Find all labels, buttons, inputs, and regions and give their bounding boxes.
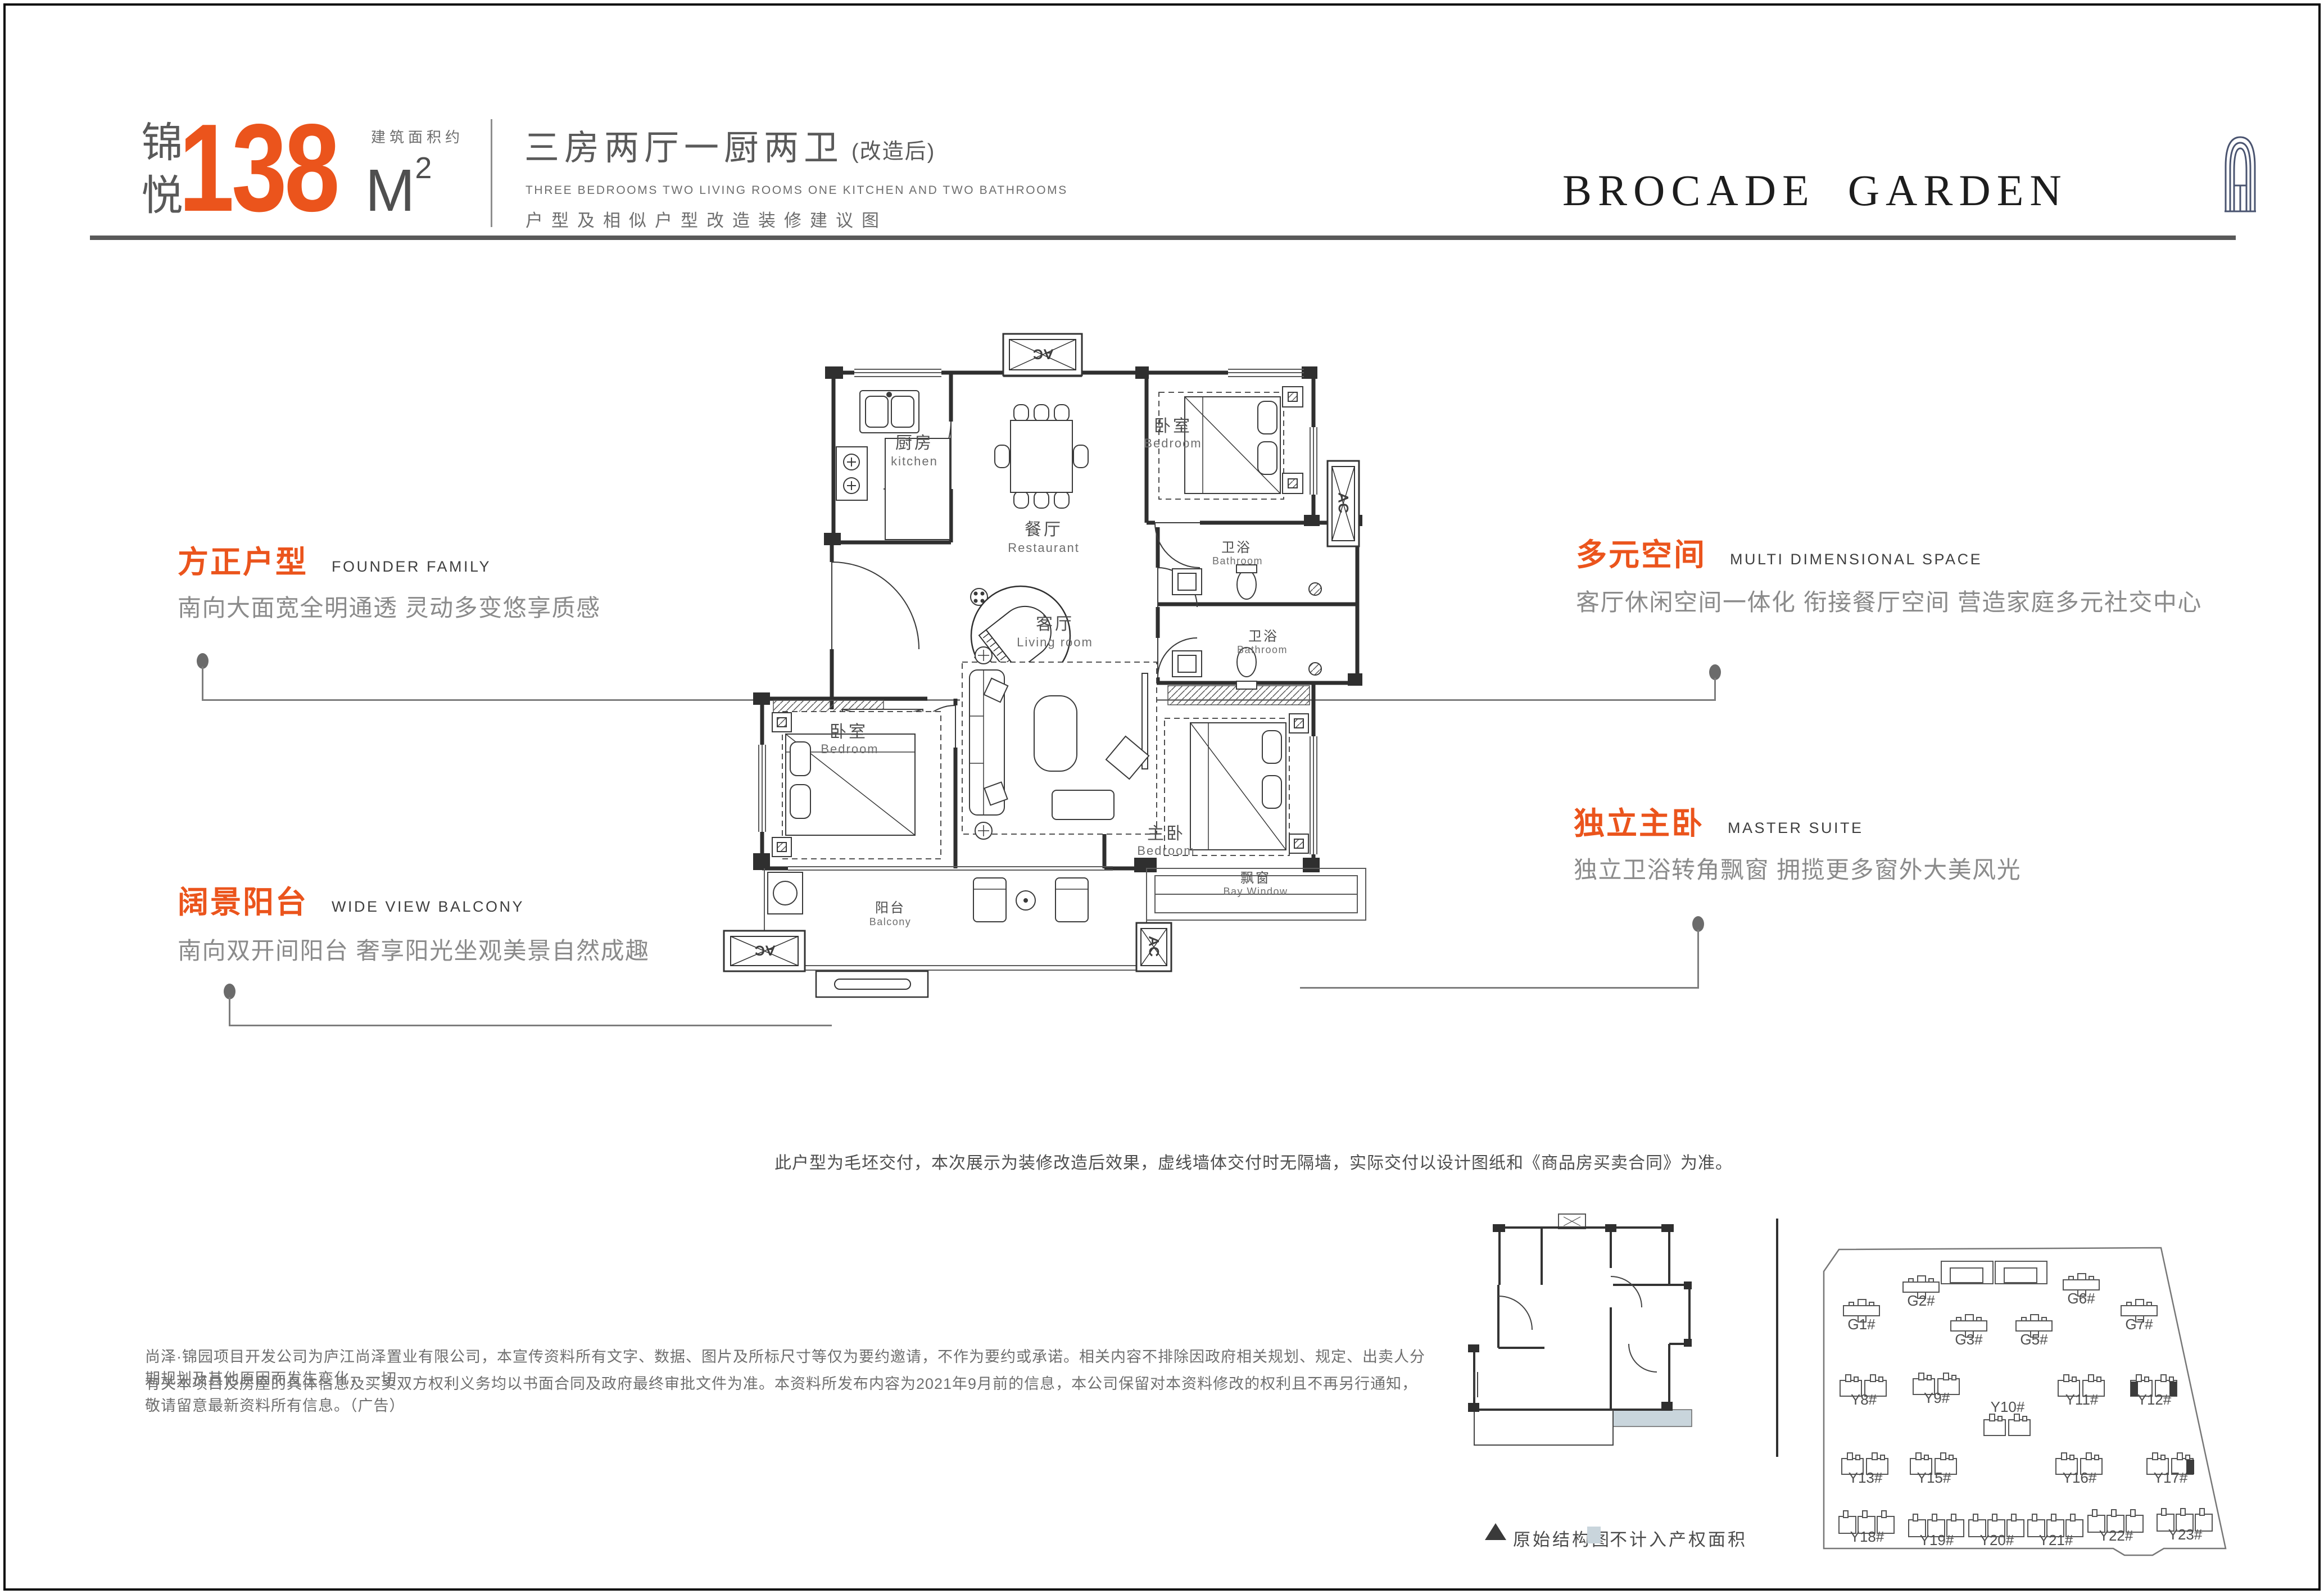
- leader-line: [1714, 678, 1716, 701]
- arch-door-icon: [2223, 134, 2257, 212]
- building-label: Y11#: [2065, 1391, 2099, 1408]
- dining-table: [995, 405, 1088, 508]
- callout-title-en: MASTER SUITE: [1728, 819, 1864, 839]
- room-bath-lower-en: Bathroom: [1237, 644, 1288, 655]
- callout-title-cn: 阔景阳台: [178, 887, 308, 918]
- non-property-area: [1613, 1410, 1692, 1427]
- room-balcony-cn: 阳台: [875, 900, 905, 916]
- room-bay-en: Bay Window: [1223, 886, 1288, 897]
- layout-subtitle: 户型及相似户型改造装修建议图: [525, 206, 887, 232]
- room-balcony-en: Balcony: [869, 916, 912, 927]
- room-bay-cn: 飘窗: [1240, 871, 1271, 886]
- vertical-separator: [1776, 1219, 1778, 1457]
- room-bedroom-top-en: Bedroom: [1144, 436, 1202, 450]
- callout-title-cn: 独立主卧: [1574, 808, 1704, 839]
- callout-body: 南向双开间阳台 奢享阳光坐观美景自然成趣: [178, 932, 650, 966]
- balcony-furniture: [768, 872, 1088, 922]
- room-dining-en: Restaurant: [1008, 541, 1080, 555]
- callout-multi-dimensional-space: 多元空间 MULTI DIMENSIONAL SPACE: [1576, 540, 1982, 570]
- building-label: Y19#: [1920, 1532, 1954, 1548]
- room-bedroom-top-cn: 卧室: [1154, 417, 1192, 436]
- room-master-cn: 主卧: [1147, 825, 1185, 843]
- building-label: Y20#: [1980, 1532, 2014, 1548]
- area-unit-sup: 2: [415, 151, 432, 185]
- building-label: G6#: [2067, 1290, 2095, 1307]
- ac-unit-right: AC: [1328, 461, 1359, 546]
- callout-master-suite: 独立主卧 MASTER SUITE: [1574, 808, 1864, 839]
- callout-title-cn: 多元空间: [1576, 540, 1706, 570]
- building-label: Y9#: [1924, 1389, 1950, 1406]
- brochure-page: 锦悦 138 建筑面积约 M2 三房两厅一厨两卫 (改造后) THREE BED…: [0, 0, 2324, 1594]
- header-divider: [491, 119, 492, 227]
- room-living-en: Living room: [1017, 635, 1093, 649]
- callout-wide-view-balcony: 阔景阳台 WIDE VIEW BALCONY: [178, 887, 524, 918]
- header-rule: [90, 236, 2236, 240]
- svg-text:AC: AC: [1335, 493, 1351, 514]
- floor-plan: AC AC AC AC: [719, 326, 1385, 1124]
- ac-unit-bottom-left: AC: [724, 931, 805, 971]
- leader-line: [229, 997, 230, 1026]
- brand-logo: BROCADE GARDEN: [1562, 165, 2068, 216]
- svg-text:AC: AC: [754, 943, 774, 958]
- callout-body: 独立卫浴转角飘窗 拥揽更多窗外大美风光: [1574, 851, 2021, 885]
- room-bedroom-left-cn: 卧室: [830, 723, 868, 741]
- callout-title-cn: 方正户型: [178, 547, 308, 578]
- building-label: Y12#: [2137, 1391, 2172, 1408]
- room-bath-upper-en: Bathroom: [1212, 555, 1263, 567]
- swatch-icon: [1587, 1527, 1601, 1543]
- logo-word-1: BROCADE: [1562, 165, 1815, 216]
- building-label: Y17#: [2154, 1469, 2188, 1486]
- building-label: Y10#: [1991, 1398, 2025, 1415]
- layout-title: 三房两厅一厨两卫: [524, 128, 844, 168]
- room-bedroom-left-en: Bedroom: [821, 742, 878, 756]
- building-label: Y23#: [2168, 1526, 2203, 1543]
- building-label: G5#: [2020, 1331, 2048, 1348]
- leader-line: [1697, 930, 1699, 989]
- leader-line: [202, 667, 203, 700]
- svg-text:AC: AC: [1146, 936, 1161, 957]
- building-label: G7#: [2125, 1316, 2153, 1333]
- ac-unit-bottom-mid: AC: [1136, 923, 1171, 971]
- layout-title-en: THREE BEDROOMS TWO LIVING ROOMS ONE KITC…: [525, 184, 1068, 197]
- room-living-cn: 客厅: [1036, 615, 1074, 633]
- logo-word-2: GARDEN: [1848, 165, 2068, 216]
- area-note: 建筑面积约: [371, 126, 464, 147]
- building-label: Y15#: [1917, 1469, 1951, 1486]
- room-master-en: Bedroom: [1137, 844, 1195, 858]
- plan-note: 此户型为毛坯交付，本次展示为装修改造后效果，虚线墙体交付时无隔墙，实际交付以设计…: [774, 1149, 1733, 1174]
- ac-unit-top: AC: [1003, 334, 1082, 375]
- room-dining-cn: 餐厅: [1025, 520, 1063, 539]
- building-label: Y16#: [2063, 1469, 2097, 1486]
- site-plan: G1# G2# G3# G5# G6# G7# Y8# Y9# Y10# Y11…: [1799, 1214, 2243, 1563]
- building-label: G2#: [1907, 1292, 1935, 1309]
- callout-body: 客厅休闲空间一体化 衔接餐厅空间 营造家庭多元社交中心: [1576, 583, 2202, 618]
- room-bath-lower-cn: 卫浴: [1248, 629, 1279, 644]
- area-unit: M2: [365, 153, 432, 220]
- mini-walls: [1474, 1228, 1689, 1410]
- room-kitchen-cn: 厨房: [895, 434, 934, 452]
- building-label: Y22#: [2099, 1527, 2133, 1544]
- building-label: G3#: [1955, 1331, 1983, 1348]
- callout-founder-family: 方正户型 FOUNDER FAMILY: [178, 547, 491, 578]
- layout-suffix: (改造后): [851, 134, 935, 168]
- building-label: Y21#: [2039, 1532, 2073, 1548]
- building-label: Y8#: [1851, 1391, 1877, 1408]
- room-kitchen-en: kitchen: [891, 454, 938, 468]
- callout-title-en: WIDE VIEW BALCONY: [332, 898, 524, 918]
- disclaimer-line-2: 有关本项目及房屋的具体信息及买卖双方权利义务均以书面合同及政府最终审批文件为准。…: [145, 1371, 1426, 1415]
- callout-title-en: MULTI DIMENSIONAL SPACE: [1730, 551, 1982, 570]
- master-furniture: [1165, 714, 1308, 855]
- room-bath-upper-cn: 卫浴: [1221, 540, 1252, 555]
- layout-title-row: 三房两厅一厨两卫 (改造后): [524, 128, 935, 168]
- callout-body: 南向大面宽全明通透 灵动多变悠享质感: [178, 589, 601, 623]
- building-label: Y13#: [1849, 1469, 1883, 1486]
- callout-title-en: FOUNDER FAMILY: [332, 558, 491, 578]
- kitchen-fixtures: [836, 391, 987, 605]
- clubhouse: [1941, 1261, 2047, 1284]
- building-label: Y18#: [1850, 1528, 1884, 1545]
- legend-non-property-area: 不计入产权面积: [1610, 1525, 1747, 1551]
- triangle-icon: [1485, 1523, 1506, 1540]
- original-structure-plan: [1460, 1212, 1705, 1476]
- living-furniture: [962, 647, 1157, 839]
- bathroom-fixtures: [1172, 565, 1321, 689]
- building-label: G1#: [1847, 1316, 1875, 1333]
- svg-text:AC: AC: [1032, 346, 1053, 361]
- area-value: 138: [179, 106, 337, 230]
